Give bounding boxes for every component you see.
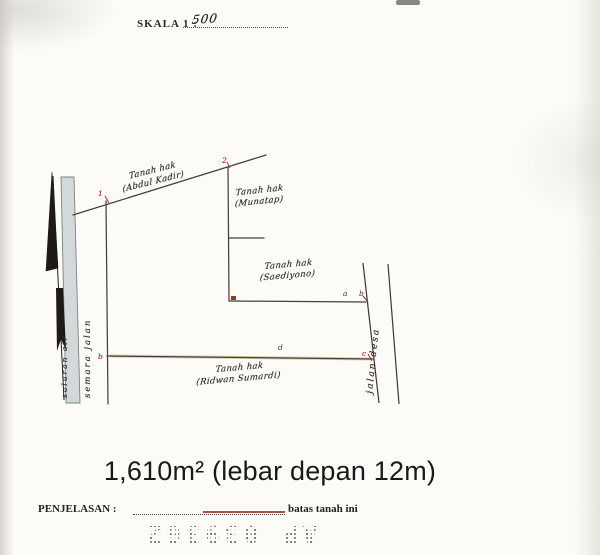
mark-point-b: b bbox=[359, 290, 364, 298]
scan-smudge bbox=[396, 0, 420, 5]
penjelasan-note: batas tanah ini bbox=[288, 503, 358, 515]
mark-point-c: c bbox=[362, 350, 366, 358]
water-channel-label: saluran air bbox=[60, 248, 69, 398]
mark-point-a: a bbox=[343, 290, 347, 298]
scale-value-handwritten: 500 bbox=[191, 11, 219, 27]
mark-top-vertex: 2 bbox=[222, 157, 227, 165]
mark-bottom-left: b bbox=[98, 353, 103, 361]
penjelasan-label: PENJELASAN : bbox=[38, 503, 117, 515]
serial-number-stamp: AP 039362 bbox=[142, 520, 317, 548]
mark-left-junction: 1 bbox=[98, 190, 103, 198]
penjelasan-dotted-leader bbox=[133, 502, 285, 515]
left-road-label: semara jalan bbox=[83, 250, 94, 398]
mark-point-d: d bbox=[278, 344, 283, 352]
area-note: 1,610m² (lebar depan 12m) bbox=[70, 456, 470, 487]
penjelasan-red-line bbox=[203, 511, 285, 513]
mark-midline-left-square bbox=[231, 296, 236, 300]
scanned-survey-document: SKALA 1 : 500 Tanah hak (Abdul Kadir) Ta… bbox=[0, 0, 600, 555]
